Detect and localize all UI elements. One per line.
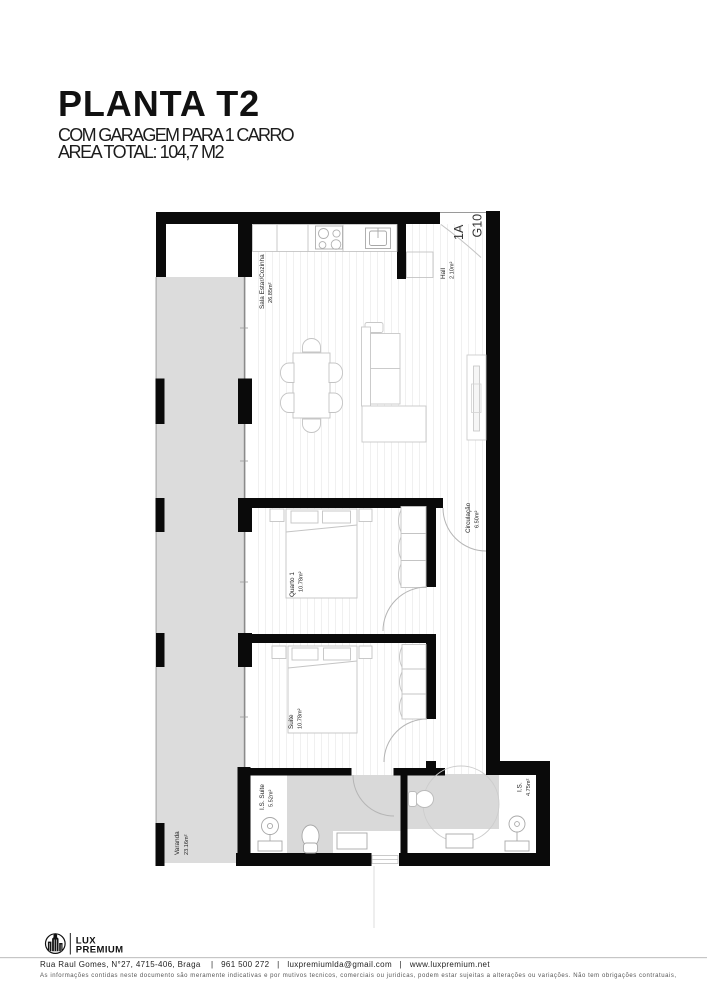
svg-text:6.50m²: 6.50m² xyxy=(475,510,481,528)
svg-text:26.85m²: 26.85m² xyxy=(268,282,274,303)
svg-text:As informações contidas neste: As informações contidas neste documento … xyxy=(40,973,677,979)
svg-text:Suite: Suite xyxy=(288,714,295,729)
svg-text:Hall: Hall xyxy=(440,268,447,279)
svg-text:Rua Raul Gomes, N°27, 4715-406: Rua Raul Gomes, N°27, 4715-406, Braga | … xyxy=(40,960,490,969)
svg-text:Circulação: Circulação xyxy=(465,502,472,533)
svg-text:10.78m²: 10.78m² xyxy=(298,708,304,729)
svg-text:Quarto 1: Quarto 1 xyxy=(289,572,296,597)
svg-text:10.78m²: 10.78m² xyxy=(299,571,305,592)
svg-text:I.S. Suite: I.S. Suite xyxy=(259,784,266,810)
svg-text:Varanda: Varanda xyxy=(174,831,181,855)
svg-text:4.75m²: 4.75m² xyxy=(526,778,532,796)
svg-text:1A: 1A xyxy=(452,224,466,240)
svg-text:I.S.: I.S. xyxy=(517,782,524,792)
svg-text:5.52m²: 5.52m² xyxy=(269,789,275,807)
svg-text:PREMIUM: PREMIUM xyxy=(76,945,124,956)
svg-text:Sala Estar/Cozinha: Sala Estar/Cozinha xyxy=(259,254,266,309)
svg-text:23.16m²: 23.16m² xyxy=(184,834,190,855)
svg-text:2.10m²: 2.10m² xyxy=(450,261,456,279)
svg-text:G10: G10 xyxy=(471,214,485,238)
